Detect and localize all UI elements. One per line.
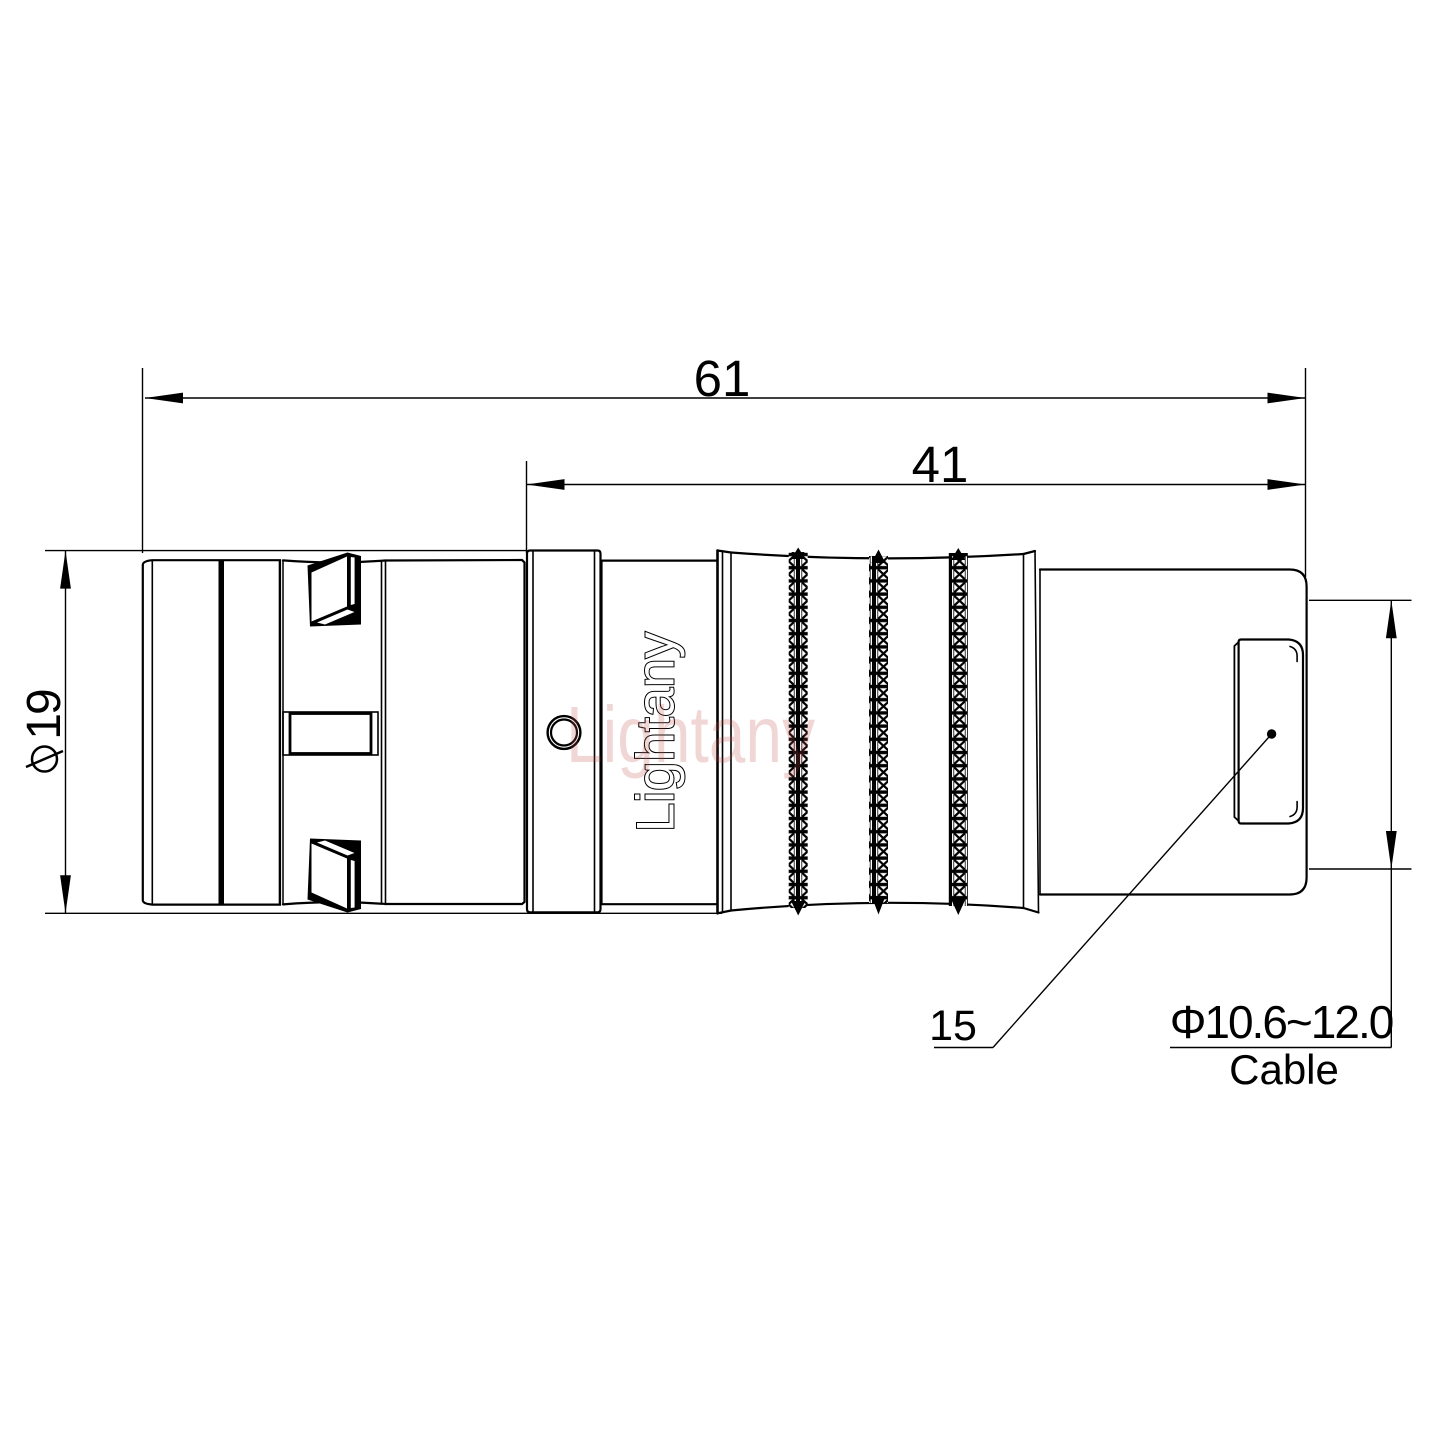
- svg-text:61: 61: [694, 350, 751, 407]
- svg-text:19: 19: [18, 690, 71, 740]
- svg-text:41: 41: [912, 436, 969, 493]
- svg-text:15: 15: [929, 1002, 977, 1050]
- svg-text:Φ10.6~12.0: Φ10.6~12.0: [1170, 996, 1393, 1048]
- svg-text:Cable: Cable: [1229, 1046, 1339, 1093]
- svg-text:Lightany: Lightany: [566, 690, 815, 779]
